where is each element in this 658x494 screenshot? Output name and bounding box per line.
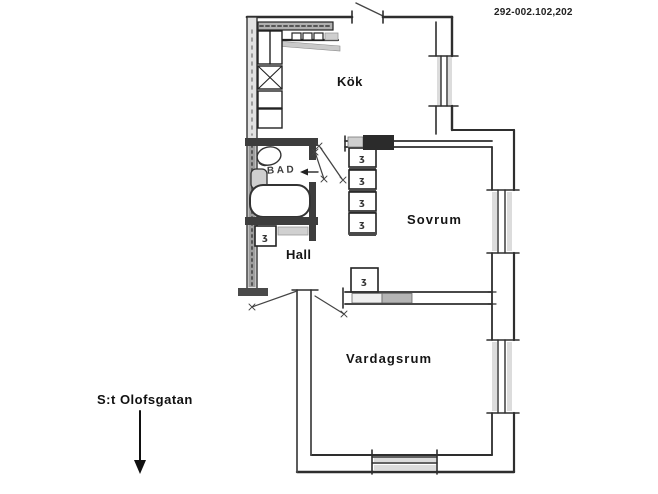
street-arrow-icon (134, 411, 146, 474)
bathroom-door-arrow-icon (300, 169, 318, 176)
windows (372, 56, 519, 474)
reference-number: 292-002.102,202 (494, 7, 573, 18)
kitchen-label: Kök (337, 74, 363, 89)
floor-plan-page: ʒ ʒ ʒ ʒ ʒ ʒ (0, 0, 658, 494)
kitchen-cabinets (258, 31, 282, 128)
bedroom-label: Sovrum (407, 212, 462, 227)
counter-edge (276, 41, 340, 51)
wall-vent (363, 135, 394, 150)
wall-hatch-box (348, 137, 363, 147)
bathroom-label: BAD (267, 164, 297, 177)
floor-plan-drawing: ʒ ʒ ʒ ʒ ʒ ʒ (0, 0, 658, 494)
bathtub-icon (250, 185, 310, 217)
closet-glyph: ʒ (359, 220, 365, 230)
closet-glyph: ʒ (359, 176, 365, 186)
kitchen-window (429, 56, 458, 106)
closet-glyph: ʒ (359, 198, 365, 208)
street-label: S:t Olofsgatan (97, 392, 193, 407)
bedroom-window (487, 190, 519, 253)
hall-label: Hall (286, 247, 311, 262)
hall-shelf (278, 227, 308, 235)
closet-glyph: ʒ (262, 233, 268, 243)
living-room-window-bottom (372, 450, 437, 474)
closet-glyph: ʒ (359, 154, 365, 164)
exterior-walls (247, 3, 514, 472)
living-room-label: Vardagsrum (346, 351, 432, 366)
kitchen-door (316, 143, 346, 183)
kitchen-sink (280, 33, 338, 40)
wall-end-cap (238, 288, 268, 296)
toilet-icon (255, 145, 282, 168)
closet-glyph: ʒ (361, 277, 367, 287)
kitchen-hall-wall (245, 138, 318, 146)
living-room-window-right (487, 340, 519, 413)
